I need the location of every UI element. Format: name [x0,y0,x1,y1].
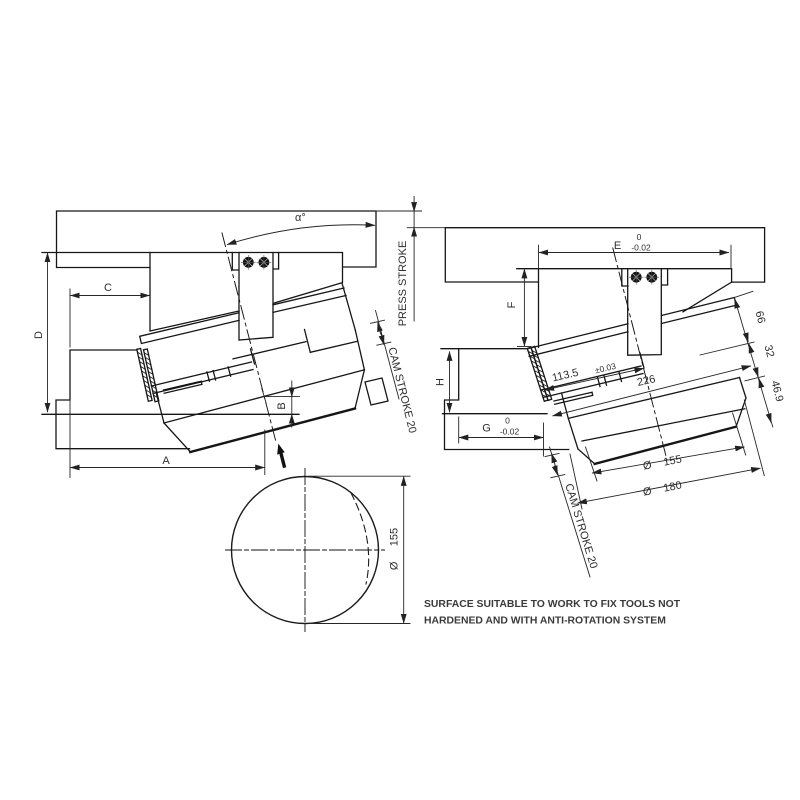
svg-text:G: G [482,423,491,435]
svg-text:32: 32 [762,344,777,359]
svg-text:-0.02: -0.02 [631,243,651,253]
svg-text:A: A [162,455,170,467]
svg-text:Ø 180: Ø 180 [642,479,683,498]
svg-text:226: 226 [636,373,657,389]
svg-text:D: D [33,331,45,339]
svg-text:α°: α° [295,212,306,224]
svg-text:SURFACE SUITABLE TO WORK TO FI: SURFACE SUITABLE TO WORK TO FIX TOOLS NO… [424,599,681,610]
svg-text:Ø 155: Ø 155 [642,453,683,472]
svg-text:B: B [276,402,288,409]
svg-text:0: 0 [505,416,510,426]
svg-text:F: F [506,301,518,308]
svg-text:PRESS STROKE: PRESS STROKE [397,241,409,327]
svg-text:0: 0 [637,232,642,242]
svg-text:Ø 155: Ø 155 [389,528,401,570]
svg-text:66: 66 [753,310,768,325]
svg-text:CAM STROKE 20: CAM STROKE 20 [385,346,418,434]
svg-text:H: H [435,378,447,386]
svg-text:C: C [104,282,112,294]
svg-text:46.9: 46.9 [768,379,785,403]
svg-text:HARDENED AND WITH ANTI-ROTATIO: HARDENED AND WITH ANTI-ROTATION SYSTEM [424,616,666,627]
svg-text:CAM STROKE 20: CAM STROKE 20 [562,482,599,570]
svg-text:E: E [614,240,621,252]
svg-text:-0.02: -0.02 [500,427,520,437]
